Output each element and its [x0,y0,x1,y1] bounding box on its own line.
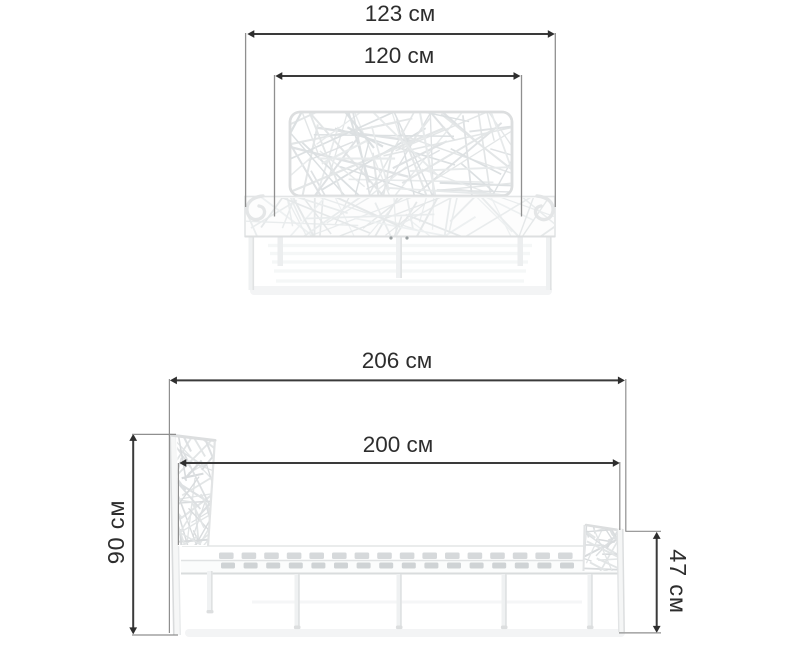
svg-text:206 см: 206 см [362,348,433,373]
svg-text:47 см: 47 см [665,549,691,614]
svg-text:123 см: 123 см [365,1,436,26]
svg-text:120 см: 120 см [364,43,435,68]
svg-text:90 см: 90 см [103,500,129,565]
svg-text:200 см: 200 см [363,432,434,457]
